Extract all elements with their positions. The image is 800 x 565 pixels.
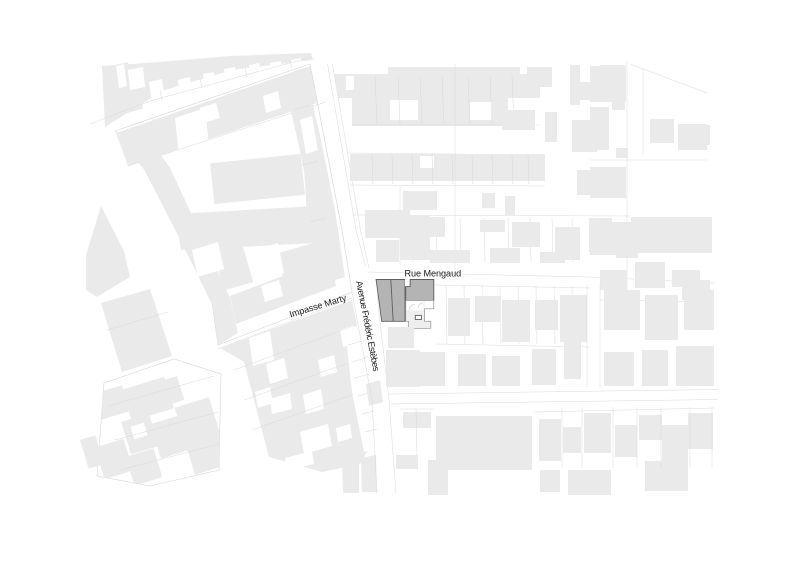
svg-text:Rue Mengaud: Rue Mengaud xyxy=(405,269,462,279)
